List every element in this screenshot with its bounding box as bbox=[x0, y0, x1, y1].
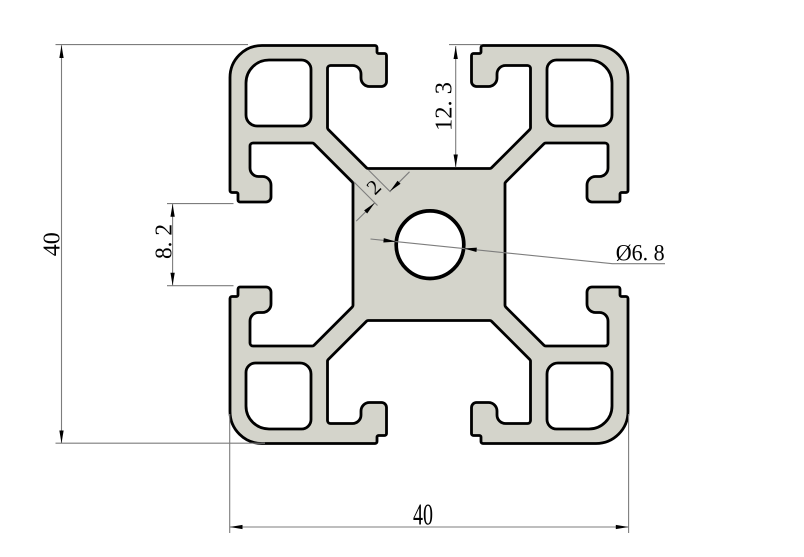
svg-text:12. 3: 12. 3 bbox=[432, 82, 458, 131]
svg-text:8. 2: 8. 2 bbox=[152, 224, 178, 259]
svg-text:40: 40 bbox=[413, 497, 433, 532]
svg-text:40: 40 bbox=[39, 232, 66, 256]
svg-text:Ø6. 8: Ø6. 8 bbox=[616, 241, 665, 266]
